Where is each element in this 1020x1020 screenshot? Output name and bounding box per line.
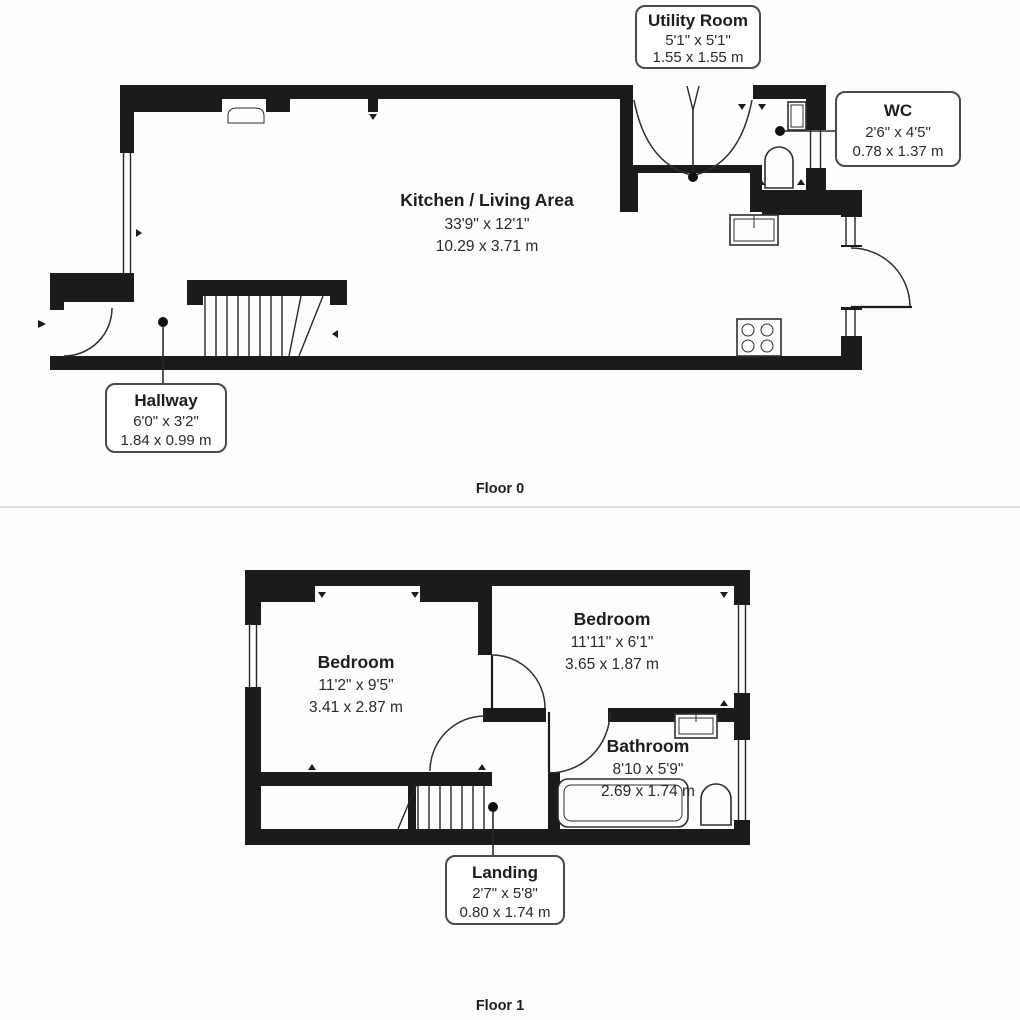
measure-dot (775, 126, 785, 136)
kitchen-living-label: Kitchen / Living Area 33'9" x 12'1" 10.2… (400, 190, 574, 255)
bedroom-right-imperial: 11'11" x 6'1" (571, 634, 654, 651)
utility-room-imperial: 5'1" x 5'1" (665, 32, 731, 49)
kitchen-living-metric: 10.29 x 3.71 m (436, 238, 539, 255)
kitchen-living-imperial: 33'9" x 12'1" (444, 216, 529, 233)
sink-icon (675, 714, 717, 738)
toilet-icon (701, 784, 731, 825)
wc-metric: 0.78 x 1.37 m (853, 143, 944, 160)
window-icon (124, 153, 131, 273)
toilet-icon (765, 147, 793, 188)
bedroom-right-metric: 3.65 x 1.87 m (565, 656, 659, 673)
landing-imperial: 2'7" x 5'8" (472, 885, 538, 902)
hallway-metric: 1.84 x 0.99 m (121, 432, 212, 449)
door-arc-icon (38, 308, 112, 356)
landing-name: Landing (472, 863, 538, 882)
hallway-imperial: 6'0" x 3'2" (133, 413, 199, 430)
bathroom-metric: 2.69 x 1.74 m (601, 783, 695, 800)
bedroom-left-label: Bedroom 11'2" x 9'5" 3.41 x 2.87 m (309, 652, 403, 716)
bedroom-right-name: Bedroom (574, 609, 651, 629)
bathroom-imperial: 8'10 x 5'9" (613, 761, 684, 778)
stove-icon (737, 319, 781, 356)
wc-imperial: 2'6" x 4'5" (865, 124, 931, 141)
window-icon (811, 130, 821, 168)
floor1-plan: Bedroom 11'2" x 9'5" 3.41 x 2.87 m Bedro… (245, 570, 750, 1014)
utility-room-metric: 1.55 x 1.55 m (653, 49, 744, 66)
utility-room-callout: Utility Room 5'1" x 5'1" 1.55 x 1.55 m (636, 6, 760, 68)
kitchen-living-name: Kitchen / Living Area (400, 190, 574, 210)
floor0-label: Floor 0 (476, 481, 524, 497)
hallway-name: Hallway (134, 391, 198, 410)
basin-icon (788, 102, 806, 130)
utility-room-name: Utility Room (648, 11, 748, 30)
wc-name: WC (884, 101, 912, 120)
sink-icon (730, 215, 778, 245)
bedroom-left-metric: 3.41 x 2.87 m (309, 699, 403, 716)
measure-dot (488, 802, 498, 812)
landing-metric: 0.80 x 1.74 m (460, 904, 551, 921)
bedroom-left-imperial: 11'2" x 9'5" (318, 677, 393, 694)
bedroom-right-label: Bedroom 11'11" x 6'1" 3.65 x 1.87 m (565, 609, 659, 673)
door-arc-icon (492, 655, 545, 708)
floor1-label: Floor 1 (476, 998, 524, 1014)
measure-dot (688, 172, 698, 182)
door-arc-icon (430, 716, 485, 771)
floorplan-svg: Utility Room 5'1" x 5'1" 1.55 x 1.55 m W… (0, 0, 1020, 1020)
floor0-plan: Utility Room 5'1" x 5'1" 1.55 x 1.55 m W… (38, 6, 960, 497)
door-arc-icon (549, 712, 610, 773)
hallway-callout: Hallway 6'0" x 3'2" 1.84 x 0.99 m (106, 384, 226, 452)
stairs-icon (205, 296, 323, 356)
bedroom-left-name: Bedroom (318, 652, 395, 672)
bathroom-name: Bathroom (607, 736, 690, 756)
wc-callout: WC 2'6" x 4'5" 0.78 x 1.37 m (836, 92, 960, 166)
landing-callout: Landing 2'7" x 5'8" 0.80 x 1.74 m (446, 856, 564, 924)
bathroom-label: Bathroom 8'10 x 5'9" 2.69 x 1.74 m (601, 736, 695, 800)
measure-dot (158, 317, 168, 327)
